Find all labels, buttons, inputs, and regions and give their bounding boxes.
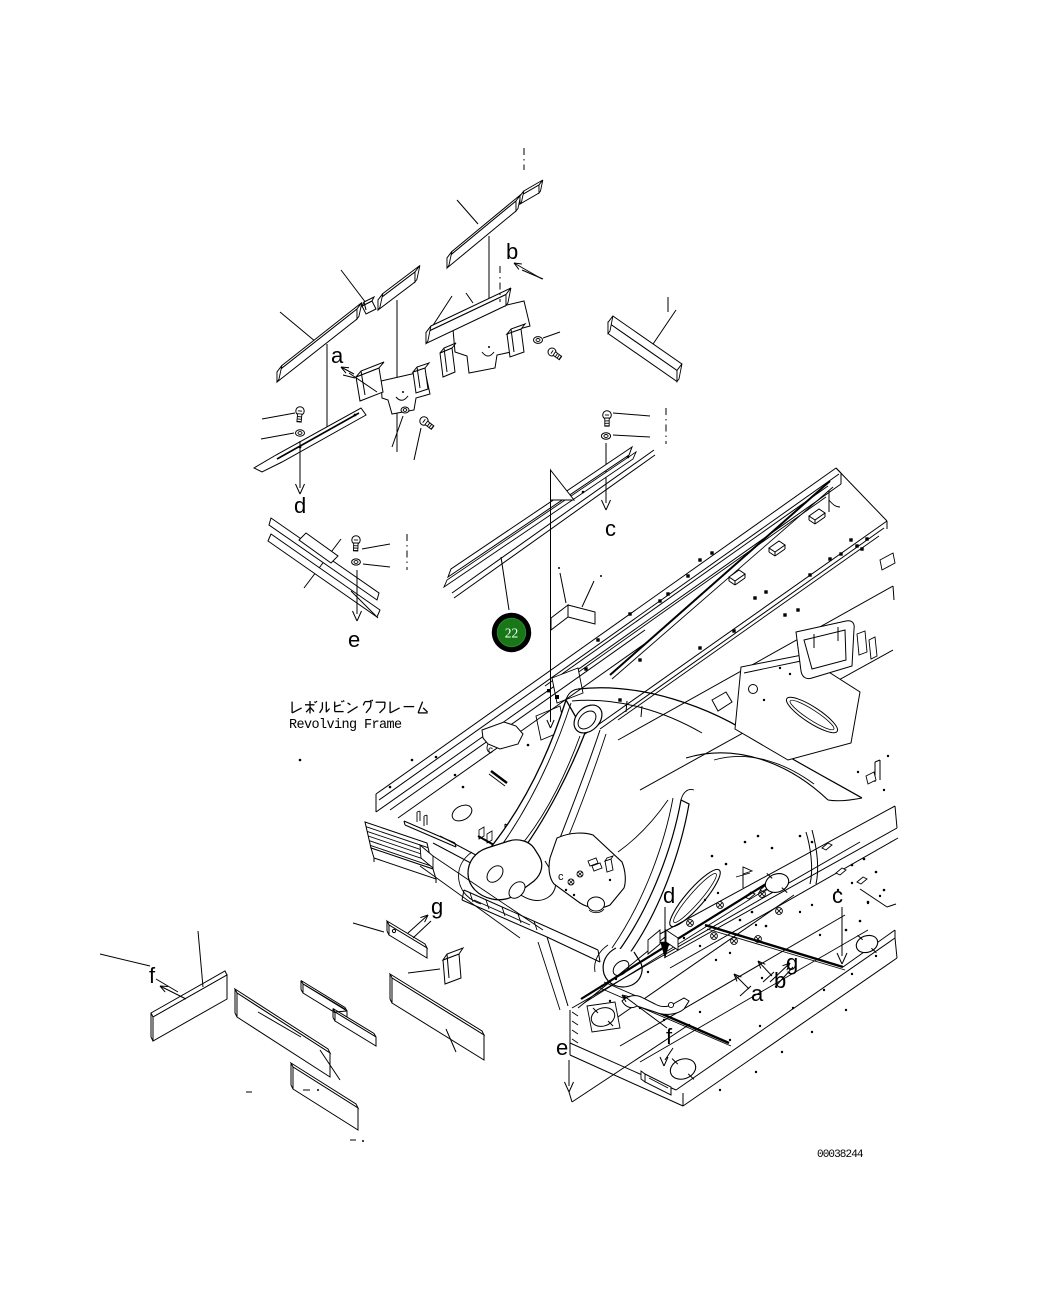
svg-text:00038244: 00038244 bbox=[817, 1149, 864, 1161]
svg-text:b: b bbox=[506, 239, 518, 264]
svg-text:e: e bbox=[348, 627, 360, 652]
svg-text:c: c bbox=[558, 871, 564, 883]
svg-text:f: f bbox=[149, 963, 156, 988]
svg-text:b: b bbox=[774, 968, 786, 993]
svg-text:c: c bbox=[832, 883, 843, 908]
svg-text:g: g bbox=[431, 894, 443, 919]
svg-text:e: e bbox=[556, 1035, 568, 1060]
svg-text:22: 22 bbox=[505, 626, 519, 641]
svg-text:d: d bbox=[663, 883, 675, 908]
svg-text:c: c bbox=[488, 745, 493, 756]
svg-text:d: d bbox=[294, 493, 306, 518]
svg-text:c: c bbox=[605, 516, 616, 541]
svg-text:g: g bbox=[786, 950, 798, 975]
svg-text:a: a bbox=[751, 981, 764, 1006]
svg-text:a: a bbox=[331, 343, 344, 368]
svg-text:Revolving Frame: Revolving Frame bbox=[289, 718, 402, 733]
